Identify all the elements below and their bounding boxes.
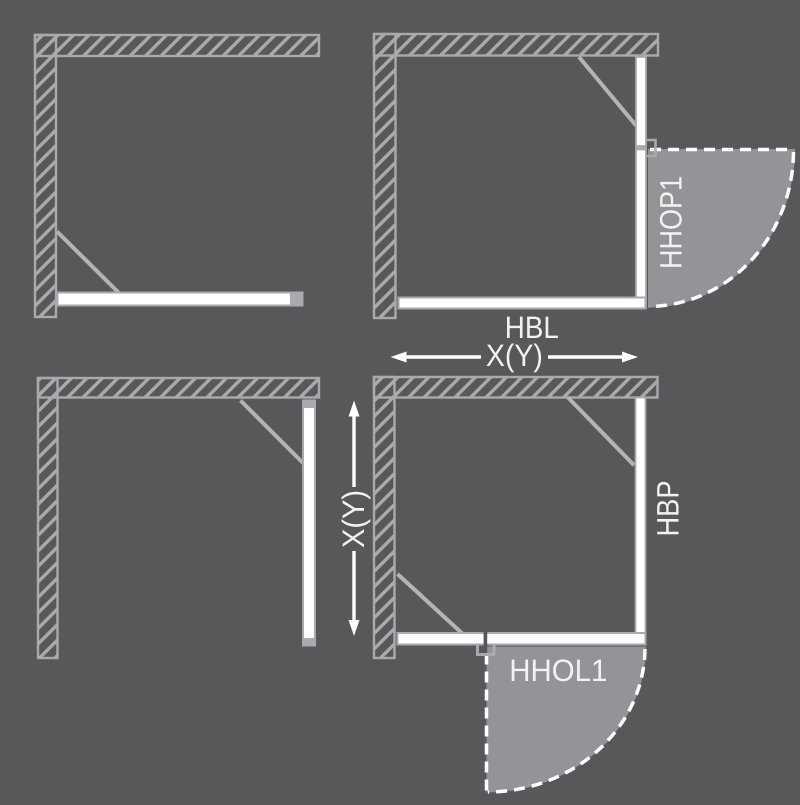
svg-text:X(Y): X(Y) — [336, 490, 371, 548]
svg-text:HBP: HBP — [651, 481, 686, 537]
svg-text:HHOL1: HHOL1 — [509, 653, 607, 688]
svg-text:X(Y): X(Y) — [486, 338, 543, 373]
svg-text:HHOP1: HHOP1 — [654, 176, 689, 269]
